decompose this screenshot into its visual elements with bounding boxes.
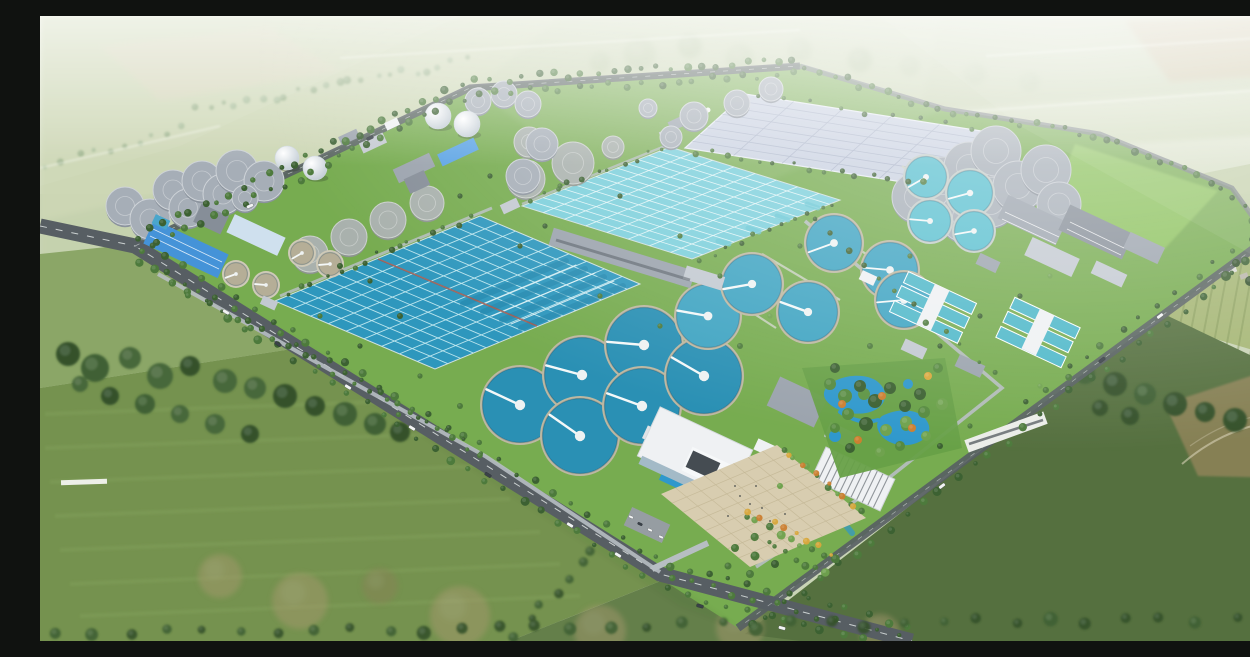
- wastewater-treatment-plant-rendering: [40, 16, 1250, 641]
- plant-aerial-scene: [40, 16, 1250, 641]
